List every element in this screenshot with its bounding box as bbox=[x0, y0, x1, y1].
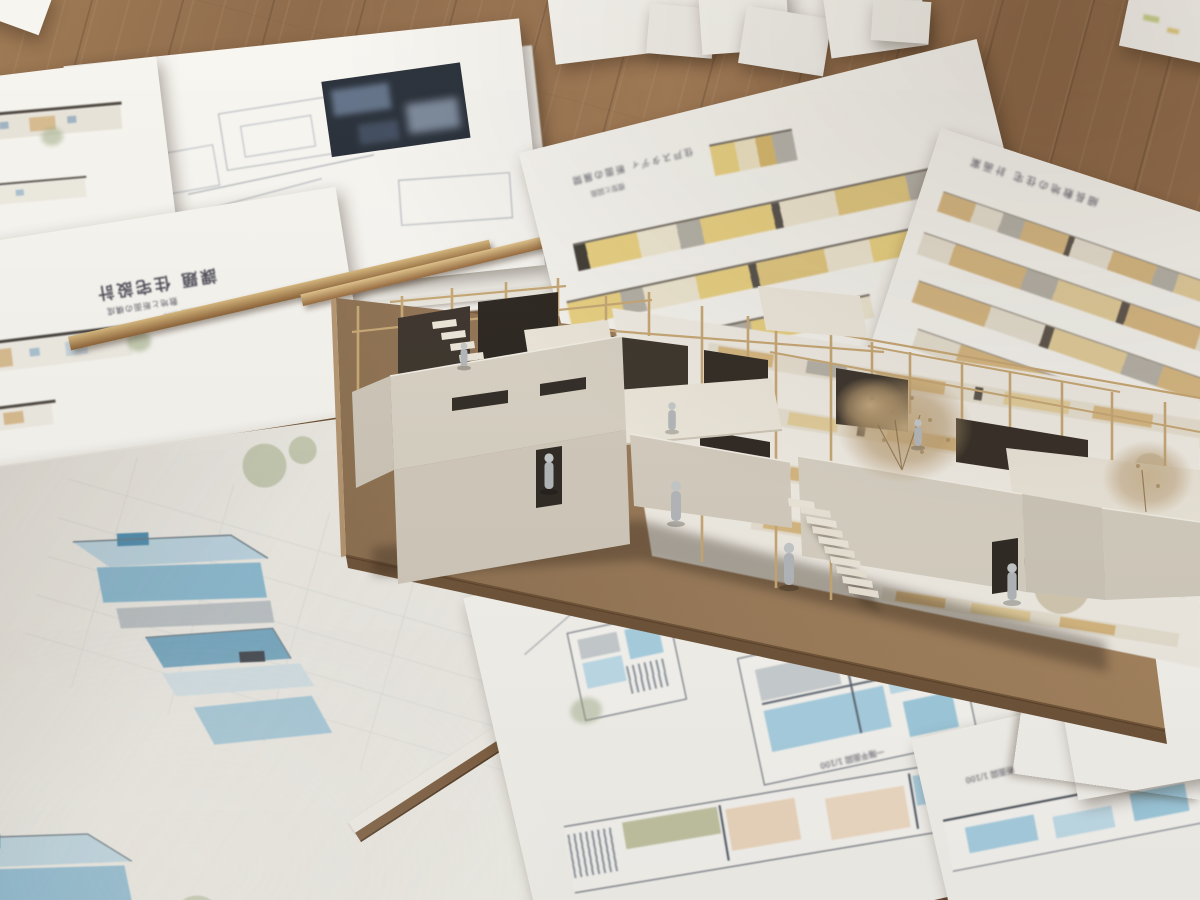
studio-floor-photo: 課題 住宅設計 敷地と断面の構成 立面図 1/50 bbox=[0, 0, 1200, 900]
study-model bbox=[0, 0, 1200, 900]
